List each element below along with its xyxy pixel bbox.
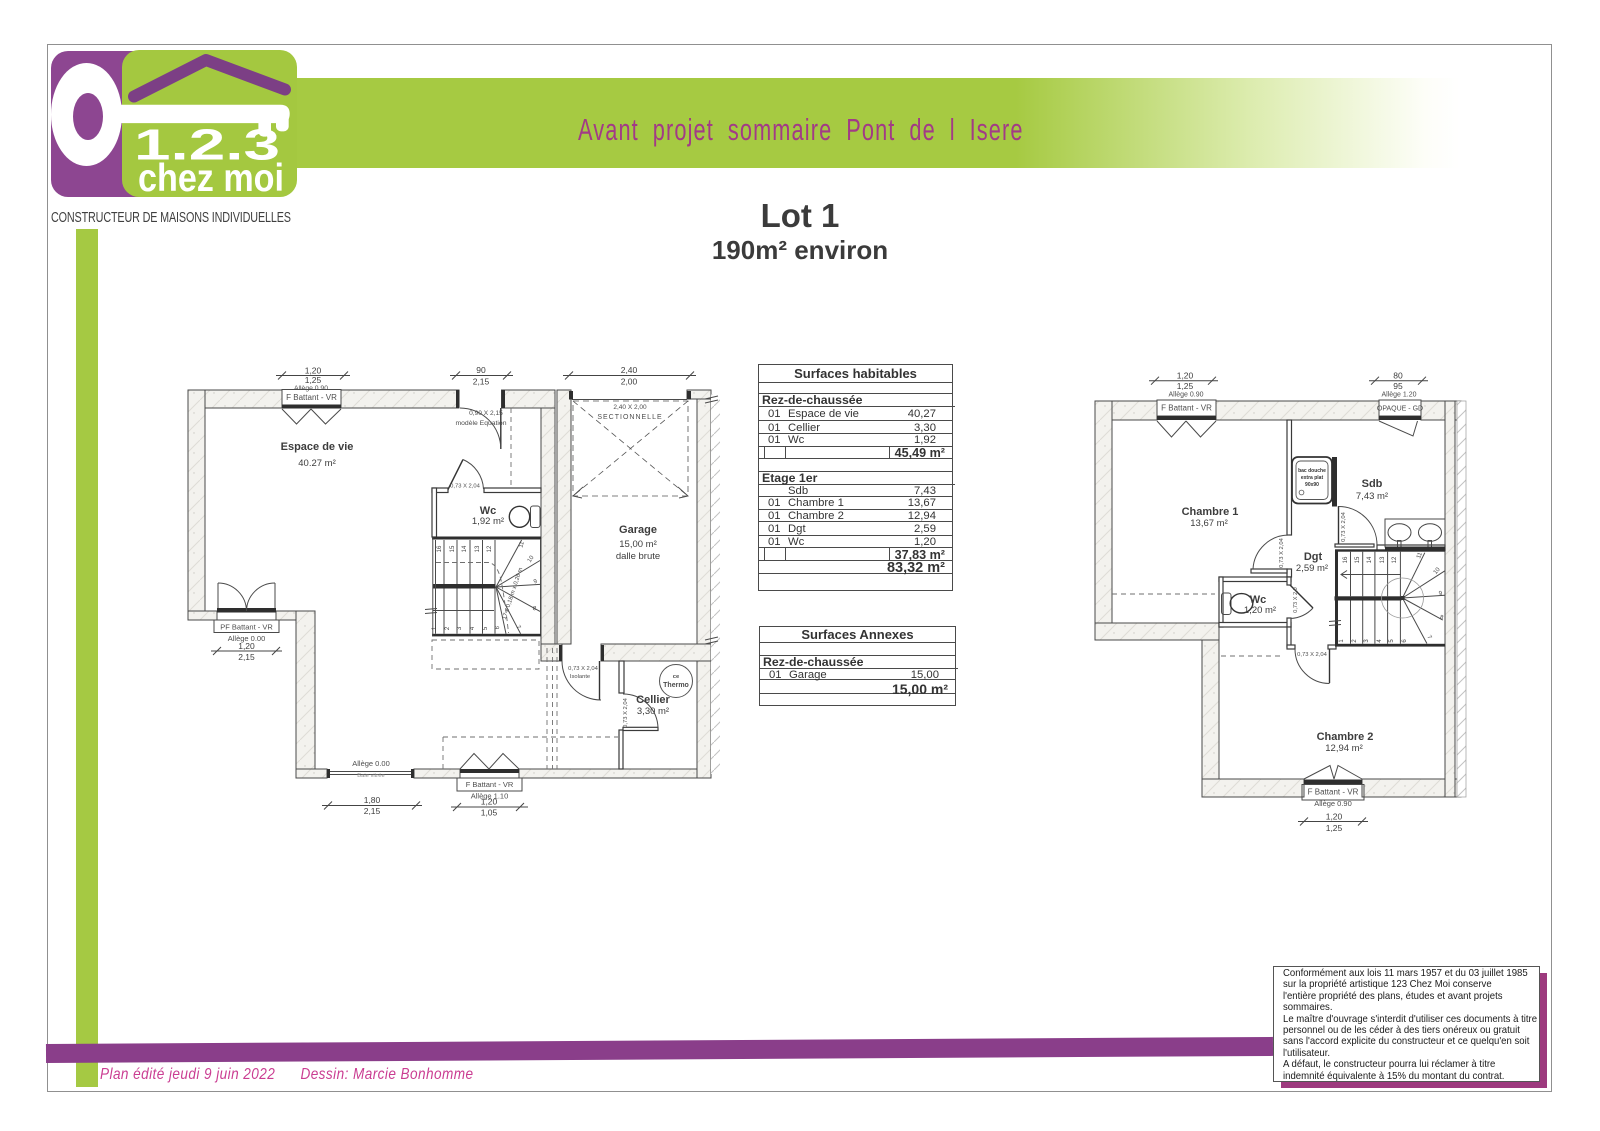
svg-text:Chambre 2: Chambre 2 — [1317, 731, 1374, 743]
svg-text:0,73 X 2,04: 0,73 X 2,04 — [450, 484, 480, 490]
svg-text:0,73 X 2,0: 0,73 X 2,0 — [1293, 587, 1299, 613]
svg-text:0,73 X 2,04: 0,73 X 2,04 — [1297, 652, 1327, 658]
svg-text:16: 16 — [1343, 556, 1349, 563]
svg-text:1,25: 1,25 — [1326, 823, 1343, 833]
svg-text:1,25: 1,25 — [305, 375, 322, 385]
svg-text:13: 13 — [475, 545, 481, 552]
svg-text:10: 10 — [1433, 566, 1442, 575]
svg-text:Allège 0.90: Allège 0.90 — [1168, 391, 1203, 398]
svg-text:bac douche: bac douche — [1298, 468, 1326, 474]
svg-text:modèle Equation: modèle Equation — [455, 420, 506, 427]
svg-text:7,43 m²: 7,43 m² — [1356, 491, 1388, 502]
svg-text:15: 15 — [1355, 556, 1361, 563]
svg-text:Baie vitrée: Baie vitrée — [357, 773, 384, 779]
svg-text:12: 12 — [1392, 556, 1398, 563]
svg-text:5: 5 — [483, 626, 489, 630]
svg-text:2,40 X 2,00: 2,40 X 2,00 — [613, 404, 647, 411]
svg-text:3,30 m²: 3,30 m² — [637, 706, 669, 717]
svg-text:7: 7 — [1425, 635, 1432, 641]
svg-text:12: 12 — [487, 545, 493, 552]
svg-text:F Battant - VR: F Battant - VR — [466, 780, 514, 789]
svg-text:PF Battant - VR: PF Battant - VR — [220, 623, 273, 632]
svg-text:1,20: 1,20 — [238, 641, 255, 651]
svg-text:Allège 1.20: Allège 1.20 — [1381, 391, 1416, 398]
svg-text:9: 9 — [533, 578, 539, 585]
svg-text:1,80: 1,80 — [364, 795, 381, 805]
svg-text:40.27 m²: 40.27 m² — [298, 458, 336, 469]
svg-text:1,20: 1,20 — [1326, 812, 1343, 822]
svg-text:4: 4 — [470, 626, 476, 630]
svg-text:2: 2 — [445, 626, 451, 630]
svg-text:3: 3 — [1364, 639, 1370, 643]
svg-text:90: 90 — [476, 365, 486, 375]
svg-text:2,40: 2,40 — [621, 365, 638, 375]
svg-text:14: 14 — [462, 545, 468, 552]
svg-text:2,59 m²: 2,59 m² — [1296, 563, 1328, 574]
svg-text:1: 1 — [1339, 639, 1345, 643]
svg-text:16: 16 — [437, 545, 443, 552]
svg-text:1,05: 1,05 — [481, 808, 498, 818]
svg-text:13,67 m²: 13,67 m² — [1190, 518, 1228, 529]
svg-text:F Battant - VR: F Battant - VR — [286, 393, 337, 402]
svg-text:F Battant - VR: F Battant - VR — [1308, 788, 1359, 797]
svg-text:Dgt: Dgt — [1304, 551, 1323, 563]
svg-text:Chambre 1: Chambre 1 — [1182, 506, 1239, 518]
svg-text:OPAQUE - GD: OPAQUE - GD — [1377, 406, 1423, 413]
svg-text:12,94 m²: 12,94 m² — [1325, 743, 1363, 754]
svg-text:3: 3 — [457, 626, 463, 630]
svg-text:90x90: 90x90 — [1305, 482, 1319, 488]
svg-text:1,20: 1,20 — [481, 797, 498, 807]
svg-text:4: 4 — [1377, 639, 1383, 643]
svg-text:ce: ce — [673, 674, 680, 680]
svg-text:0,73 X 2,04: 0,73 X 2,04 — [1279, 537, 1285, 567]
svg-text:1,20 m²: 1,20 m² — [1244, 605, 1276, 616]
svg-text:dalle brute: dalle brute — [616, 551, 660, 562]
svg-text:0,73 X 2,04: 0,73 X 2,04 — [1341, 511, 1347, 541]
svg-text:Garage: Garage — [619, 524, 657, 536]
svg-text:0,90 X 2,15: 0,90 X 2,15 — [469, 410, 503, 417]
svg-text:13: 13 — [1380, 556, 1386, 563]
svg-text:2: 2 — [1352, 639, 1358, 643]
svg-text:1,20: 1,20 — [1177, 370, 1194, 380]
svg-text:6: 6 — [495, 625, 502, 630]
svg-text:chez moi: chez moi — [138, 157, 284, 198]
svg-text:Allège 0.90: Allège 0.90 — [294, 385, 328, 392]
svg-text:Allège 0.00: Allège 0.00 — [352, 759, 390, 768]
svg-text:0,73 X 2,04: 0,73 X 2,04 — [568, 666, 598, 672]
svg-text:7: 7 — [514, 625, 521, 631]
svg-text:Isolante: Isolante — [570, 674, 590, 680]
svg-text:95: 95 — [1393, 381, 1403, 391]
svg-text:F Battant - VR: F Battant - VR — [1161, 404, 1212, 413]
svg-text:15,00 m²: 15,00 m² — [619, 539, 657, 550]
svg-text:1,92 m²: 1,92 m² — [472, 516, 504, 527]
svg-text:15: 15 — [450, 545, 456, 552]
svg-text:2,15: 2,15 — [364, 806, 381, 816]
svg-text:5: 5 — [1389, 639, 1395, 643]
svg-text:11: 11 — [518, 540, 526, 548]
svg-text:extra plat: extra plat — [1301, 475, 1324, 481]
svg-text:80: 80 — [1393, 370, 1403, 380]
svg-text:2,15: 2,15 — [473, 377, 490, 387]
svg-text:10: 10 — [527, 554, 536, 563]
svg-text:Espace de vie: Espace de vie — [281, 441, 354, 453]
svg-text:9: 9 — [1438, 591, 1443, 598]
svg-text:0,73 X 2,04: 0,73 X 2,04 — [623, 697, 629, 727]
svg-text:14: 14 — [1367, 556, 1373, 563]
svg-text:Cellier: Cellier — [636, 694, 670, 706]
svg-text:Sdb: Sdb — [1362, 478, 1383, 490]
svg-text:1,25: 1,25 — [1177, 381, 1194, 391]
svg-text:Allège 0.90: Allège 0.90 — [1314, 799, 1352, 808]
svg-text:Thermo: Thermo — [663, 682, 689, 689]
svg-text:6: 6 — [1402, 639, 1408, 643]
svg-text:2,15: 2,15 — [238, 652, 255, 662]
svg-text:17 x 0,18 m x 0,26 m: 17 x 0,18 m x 0,26 m — [502, 567, 524, 620]
svg-text:2,00: 2,00 — [621, 377, 638, 387]
svg-text:8: 8 — [1439, 615, 1445, 622]
svg-text:SECTIONNELLE: SECTIONNELLE — [597, 414, 662, 421]
svg-text:11: 11 — [1416, 551, 1424, 560]
